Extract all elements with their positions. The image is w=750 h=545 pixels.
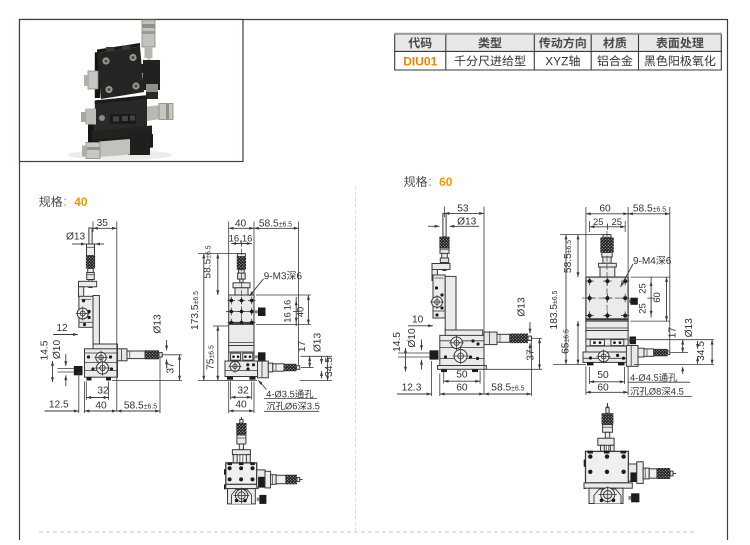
svg-text:58.5±6.5: 58.5±6.5 xyxy=(124,401,157,412)
svg-text:34.5: 34.5 xyxy=(324,357,335,377)
svg-text:37: 37 xyxy=(526,349,537,361)
svg-text:Ø13: Ø13 xyxy=(684,318,695,338)
svg-text:34.5: 34.5 xyxy=(696,341,707,361)
svg-text:40: 40 xyxy=(296,307,307,318)
svg-text:58.5±6.5: 58.5±6.5 xyxy=(563,240,574,273)
svg-text:DIU01: DIU01 xyxy=(403,54,437,68)
svg-text:58.5±6.5: 58.5±6.5 xyxy=(633,204,666,215)
svg-text:173.5±6.5: 173.5±6.5 xyxy=(190,291,201,330)
svg-text:12.5: 12.5 xyxy=(49,400,69,411)
svg-text:65±6.5: 65±6.5 xyxy=(561,329,572,354)
svg-text:Ø10: Ø10 xyxy=(407,328,418,348)
svg-text:Ø10: Ø10 xyxy=(52,340,63,360)
svg-text:17: 17 xyxy=(297,341,308,353)
svg-text:12.3: 12.3 xyxy=(402,383,422,394)
svg-text:Ø13: Ø13 xyxy=(517,297,528,317)
svg-text:40: 40 xyxy=(235,400,247,411)
svg-text:16: 16 xyxy=(283,312,294,323)
svg-text:Ø13: Ø13 xyxy=(153,314,164,334)
svg-text:14.5: 14.5 xyxy=(392,332,403,352)
svg-text:50: 50 xyxy=(597,370,609,381)
svg-text:14.5: 14.5 xyxy=(40,340,51,360)
svg-text:40: 40 xyxy=(74,195,88,209)
svg-text:17: 17 xyxy=(667,327,678,339)
svg-text:75±6.5: 75±6.5 xyxy=(206,345,217,370)
svg-text:60: 60 xyxy=(652,292,663,303)
svg-text:25: 25 xyxy=(638,283,649,294)
svg-text:Ø13: Ø13 xyxy=(313,333,324,353)
svg-text:50: 50 xyxy=(456,370,468,381)
svg-text:60: 60 xyxy=(599,204,611,215)
svg-text:25: 25 xyxy=(638,303,649,314)
svg-text:53: 53 xyxy=(457,204,469,215)
svg-text:35: 35 xyxy=(97,218,109,229)
svg-text:12: 12 xyxy=(56,323,68,334)
svg-text:10: 10 xyxy=(412,315,424,326)
svg-text:60: 60 xyxy=(456,383,468,394)
svg-text:58.5±6.5: 58.5±6.5 xyxy=(491,383,524,394)
svg-text:32: 32 xyxy=(237,386,249,397)
svg-text:40: 40 xyxy=(95,401,107,412)
svg-text:Ø13: Ø13 xyxy=(66,231,86,242)
svg-text:183.5±6.5: 183.5±6.5 xyxy=(549,290,560,329)
svg-text:37: 37 xyxy=(166,362,177,374)
svg-text:60: 60 xyxy=(439,175,453,189)
svg-text:16: 16 xyxy=(283,300,294,311)
svg-text:32: 32 xyxy=(97,386,109,397)
